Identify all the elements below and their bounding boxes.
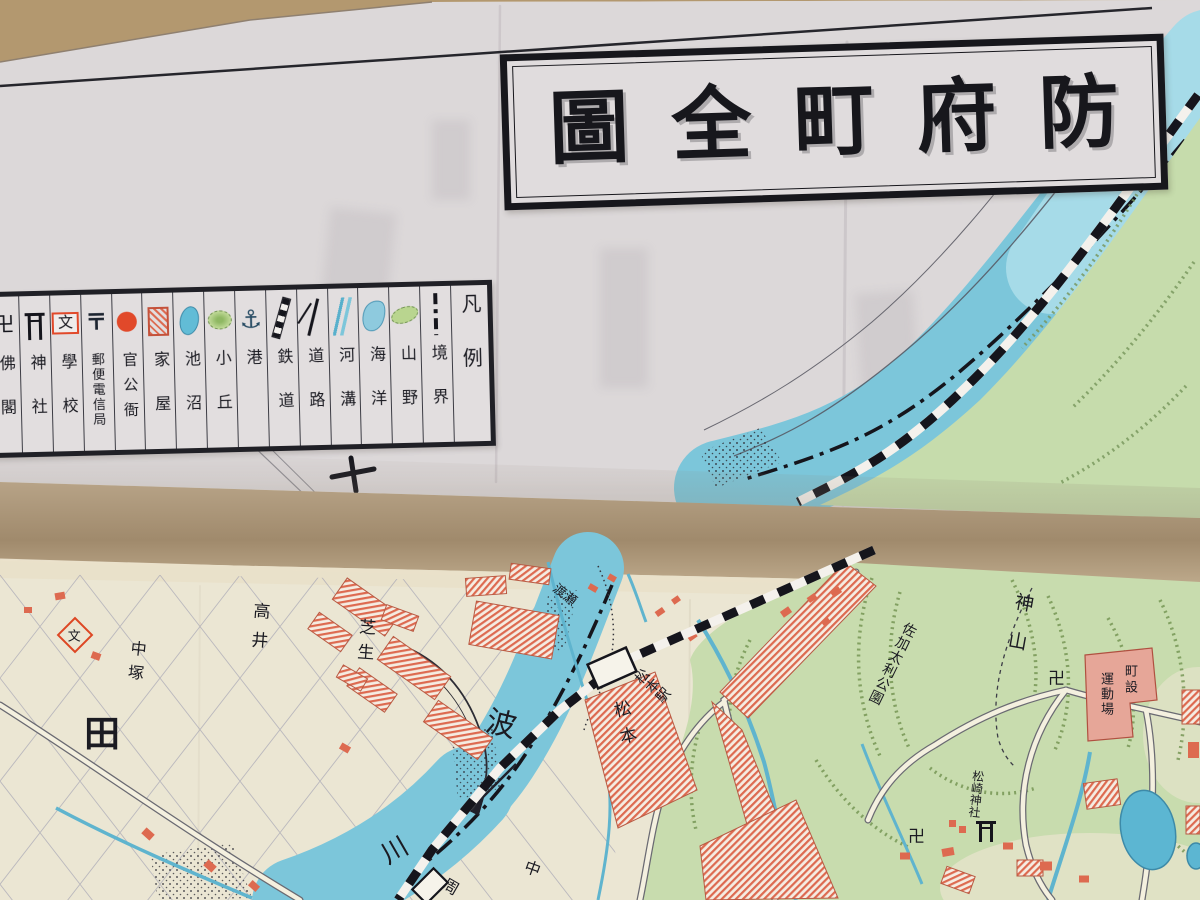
legend-item-river: 河溝 — [327, 288, 362, 445]
playground-label-chosetsu: 町設 — [1124, 664, 1137, 696]
legend-label: 小丘 — [213, 347, 231, 447]
legend-label: 鉄道 — [274, 346, 292, 446]
legend-label: 河溝 — [336, 344, 354, 444]
legend-item-harbor: ⚓ 港 — [234, 290, 269, 447]
house-hatch-icon — [147, 306, 169, 336]
legend-label: 郵便電信局 — [91, 350, 106, 450]
legend-item-pond: 池沼 — [172, 292, 207, 449]
legend-item-houses: 家屋 — [142, 293, 177, 450]
place-label-shibafu: 芝生 — [354, 617, 374, 668]
legend-item-sea: 海洋 — [357, 287, 392, 444]
road-fork-icon — [301, 298, 324, 337]
school-box-icon: 文 — [52, 312, 80, 335]
place-label-takai: 高井 — [248, 601, 269, 660]
school-symbol-char: 文 — [68, 625, 81, 644]
legend-heading: 凡例 — [455, 285, 487, 402]
legend-item-post-office: 〒 郵便電信局 — [80, 294, 115, 451]
postal-mark-icon: 〒 — [85, 311, 108, 334]
legend-item-knoll: 小丘 — [203, 291, 238, 448]
legend-label: 佛閣 — [0, 353, 15, 453]
title-char: 府 — [915, 77, 997, 159]
hill-patch-icon — [389, 303, 421, 327]
anchor-icon: ⚓ — [239, 306, 262, 332]
legend-label: 學校 — [58, 351, 76, 451]
legend-item-road: 道路 — [296, 289, 331, 446]
map-photo-frame: 防 府 町 全 圖 凡例 境界 山野 海洋 河溝 道路 鉄道 ⚓ 港 小丘 — [0, 0, 1200, 900]
legend-heading-column: 凡例 — [450, 285, 491, 442]
legend-box: 凡例 境界 山野 海洋 河溝 道路 鉄道 ⚓ 港 小丘 池沼 家屋 官公 — [0, 280, 496, 458]
legend-item-government: 官公衙 — [111, 293, 146, 450]
legend-label: 池沼 — [182, 348, 200, 448]
map-title: 防 府 町 全 圖 — [512, 46, 1156, 198]
torii-icon — [24, 308, 45, 339]
legend-label: 道路 — [305, 345, 323, 445]
knoll-icon — [208, 310, 232, 330]
title-char: 全 — [670, 85, 752, 167]
title-char: 町 — [793, 81, 875, 163]
title-char: 圖 — [548, 88, 630, 170]
legend-item-shrine: 神社 — [18, 296, 53, 453]
place-label-ta: 田 — [84, 716, 120, 752]
legend-label: 家屋 — [151, 349, 169, 449]
title-char: 防 — [1038, 73, 1120, 155]
boundary-line-icon — [433, 293, 438, 335]
pond-icon — [177, 304, 201, 336]
legend-label: 神社 — [27, 352, 45, 452]
sea-patch-icon — [359, 297, 390, 334]
torii-icon — [976, 818, 996, 842]
river-lines-icon — [333, 297, 354, 335]
legend-label: 官公衙 — [120, 350, 137, 450]
temple-manji-mark: 卍 — [1048, 670, 1065, 687]
legend-item-hills: 山野 — [388, 287, 423, 444]
legend-label: 港 — [243, 346, 261, 446]
playground-label-undojo: 運動場 — [1100, 672, 1113, 717]
legend-item-boundary: 境界 — [419, 286, 454, 443]
government-circle-icon — [117, 311, 137, 331]
legend-item-school: 文 學校 — [49, 295, 84, 452]
railway-band-icon — [272, 297, 292, 340]
temple-manji-mark: 卍 — [908, 828, 925, 845]
legend-label: 山野 — [398, 343, 416, 443]
manji-icon: 卍 — [0, 314, 15, 336]
legend-label: 境界 — [428, 342, 446, 442]
map-title-box: 防 府 町 全 圖 — [500, 34, 1169, 211]
legend-label: 海洋 — [367, 343, 385, 443]
legend-item-railway: 鉄道 — [265, 290, 300, 447]
